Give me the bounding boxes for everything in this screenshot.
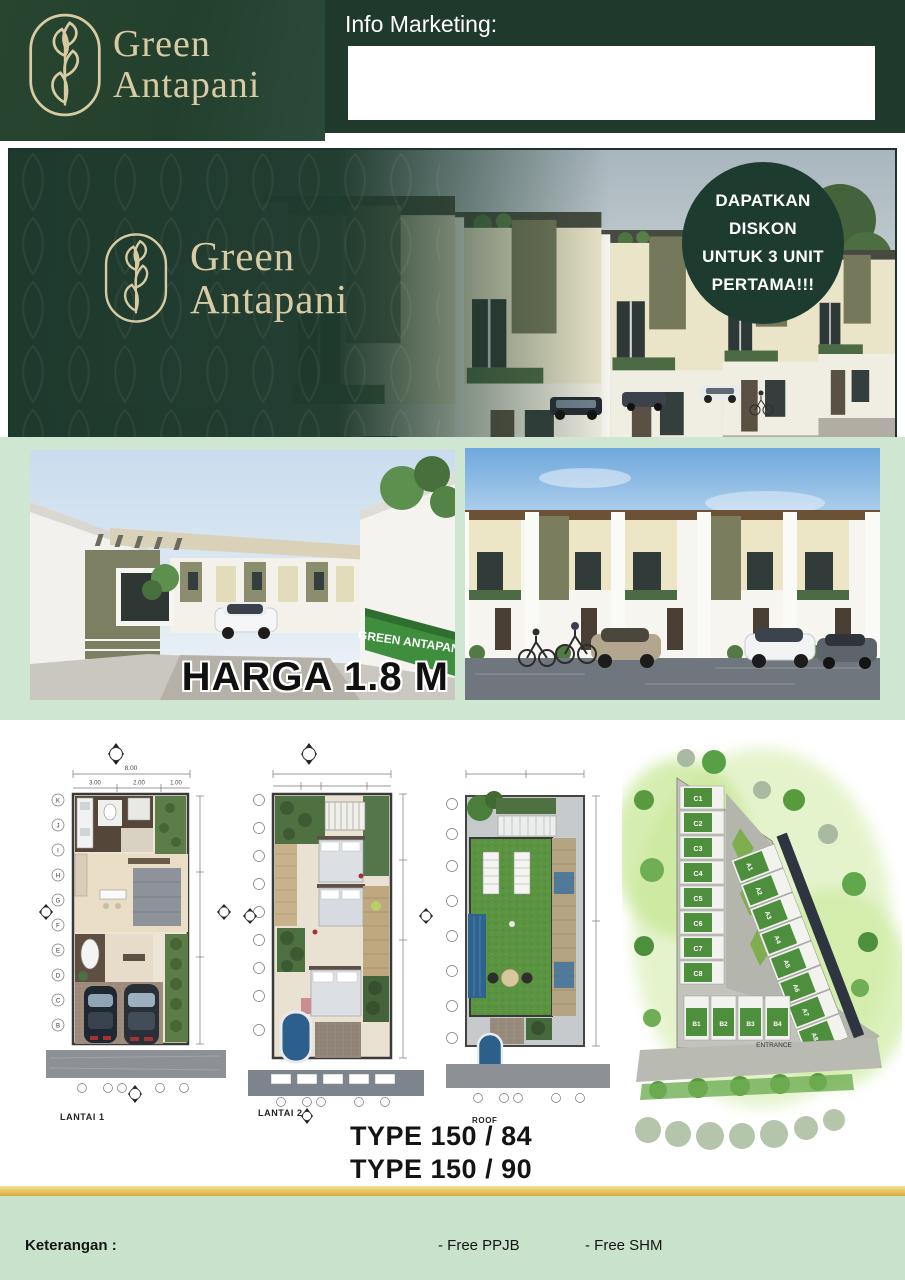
axis-letter: C: [56, 999, 61, 1005]
brand-name-line2: Antapani: [113, 65, 260, 106]
unit-label: B2: [719, 1021, 728, 1028]
axis-letter: F: [56, 924, 60, 930]
leaf-emblem-icon: [102, 225, 170, 331]
footer-col-syarat: - Free SHM - Harga belum termasuk BPHTB …: [585, 1198, 891, 1280]
axis-letter: D: [56, 974, 61, 980]
hero-brand-logo: Green Antapani: [102, 222, 348, 334]
axis-letter: J: [57, 824, 60, 830]
entrance-label: ENTRANCE: [756, 1042, 792, 1049]
contact-info-box: [348, 46, 875, 120]
hero-brand-line2: Antapani: [190, 278, 348, 321]
brand-name: Green Antapani: [113, 24, 260, 106]
flyer-page: Green Antapani Info Marketing:: [0, 0, 905, 1280]
floorplan-roof: [438, 746, 618, 1126]
dim-seg2: 2.00: [133, 781, 145, 787]
gate-photo: GREEN ANTAPANI HARGA 1.8 M: [30, 450, 455, 700]
hero-brand-name: Green Antapani: [190, 235, 348, 321]
gold-divider: [0, 1186, 905, 1196]
brand-name-line1: Green: [113, 24, 260, 65]
hero-brand-line1: Green: [190, 235, 348, 278]
unit-label: C8: [694, 971, 703, 978]
siteplan: C1 C2 C3 C4 C5 C6 C7 C8 A1 A2 A3 A4 A5 A…: [622, 738, 902, 1168]
gallery-section: GREEN ANTAPANI HARGA 1.8 M: [0, 437, 905, 720]
axis-letter: B: [56, 1024, 60, 1030]
floorplan-lantai2: [243, 740, 433, 1125]
hero-banner: Green Antapani DAPATKAN DISKON UNTUK 3 U…: [8, 148, 897, 440]
unit-label: B1: [692, 1021, 701, 1028]
info-marketing-label: Info Marketing:: [345, 11, 497, 38]
unit-label: C2: [694, 821, 703, 828]
unit-label: C5: [694, 896, 703, 903]
footer-col-free: - Free PPJB - Free AJB - Free IMB - Free…: [438, 1198, 559, 1280]
keterangan-title: Keterangan :: [25, 1236, 439, 1255]
leaf-emblem-icon: [26, 9, 104, 121]
lantai2-label: LANTAI 2: [258, 1108, 303, 1118]
street-render: [465, 448, 880, 700]
brand-logo-block: Green Antapani: [0, 0, 325, 141]
axis-letter: E: [56, 949, 60, 955]
unit-label: C7: [694, 946, 703, 953]
footer-notes: Keterangan : - Harga sewaktu-waktu bisa …: [0, 1196, 905, 1280]
footer-col-keterangan: Keterangan : - Harga sewaktu-waktu bisa …: [25, 1198, 439, 1280]
dim-seg3: 1.00: [170, 781, 182, 787]
type-labels: TYPE 150 / 84 TYPE 150 / 90: [350, 1120, 532, 1186]
lantai1-label: LANTAI 1: [60, 1112, 105, 1122]
syarat-item: - Free SHM: [585, 1236, 891, 1255]
unit-label: C3: [694, 846, 703, 853]
street-photo: [465, 448, 880, 700]
axis-letter: H: [56, 874, 60, 880]
axis-letter: K: [56, 799, 60, 805]
discount-badge-line2: UNTUK 3 UNIT: [702, 243, 824, 271]
unit-label: C4: [694, 871, 703, 878]
unit-label: C6: [694, 921, 703, 928]
dim-seg1: 3.00: [89, 781, 101, 787]
dim-total: 8.00: [125, 765, 138, 772]
floorplans-section: 8.00 3.00 2.00 1.00: [0, 720, 905, 1186]
unit-label: B4: [773, 1021, 782, 1028]
header-bar: Green Antapani Info Marketing:: [0, 0, 905, 133]
unit-label: B3: [746, 1021, 755, 1028]
unit-label: C1: [694, 796, 703, 803]
axis-letter: G: [56, 899, 61, 905]
price-label: HARGA 1.8 M: [182, 655, 449, 700]
type-label-2: TYPE 150 / 90: [350, 1153, 532, 1186]
discount-badge: DAPATKAN DISKON UNTUK 3 UNIT PERTAMA!!!: [682, 162, 844, 324]
type-label-1: TYPE 150 / 84: [350, 1120, 532, 1153]
floorplan-lantai1: 8.00 3.00 2.00 1.00: [38, 742, 233, 1107]
discount-badge-line3: PERTAMA!!!: [712, 271, 815, 299]
free-item: - Free PPJB: [438, 1236, 559, 1255]
discount-badge-line1: DAPATKAN DISKON: [682, 187, 844, 243]
